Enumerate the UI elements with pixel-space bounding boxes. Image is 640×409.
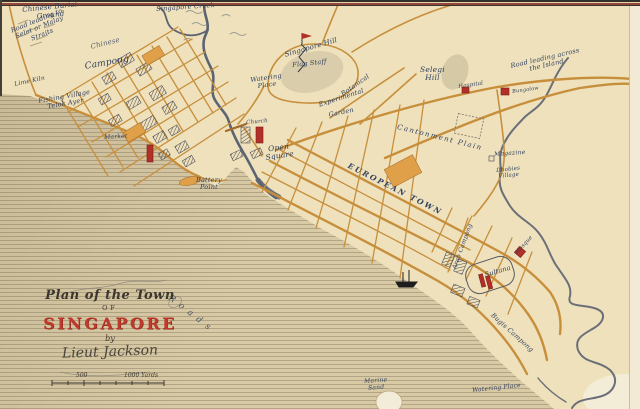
church-building [256,127,263,143]
watering-stream [538,378,566,402]
scale-label-500: 500 [76,372,87,379]
cartouche-singapore: SINGAPORE [40,314,180,333]
secondary-roads [9,0,504,216]
bungalow-building [501,88,509,95]
paper-margin [629,0,640,409]
title-cartouche: Plan of the Town OF SINGAPORE by Lieut J… [40,288,180,360]
market-building [147,145,153,162]
antique-map-plan-of-singapore: Chinese Burial Ground Road leading to Se… [0,0,640,409]
label-battery-point: Battery Point [196,177,222,192]
singapore-river [203,0,276,198]
marine-sandbank [376,391,402,409]
cartouche-title: Plan of the Town [40,288,180,303]
scale-label-1000-yards: 1000 Yards [124,372,158,379]
map-border-top [0,0,640,6]
label-market: Market [104,134,128,142]
scale-bar [52,380,164,386]
ship-icon [396,270,417,287]
label-selegi-hill: Selegi Hill [420,66,445,83]
label-dhobies-village: Dhobies Village [496,165,521,180]
magazine-building [489,156,494,161]
hatched-blocks [98,52,480,308]
label-marine-sand: Marine Sand [364,377,388,392]
cartouche-of: OF [40,304,180,312]
cartouche-author: Lieut Jackson [40,342,180,363]
map-border-left [0,0,2,96]
